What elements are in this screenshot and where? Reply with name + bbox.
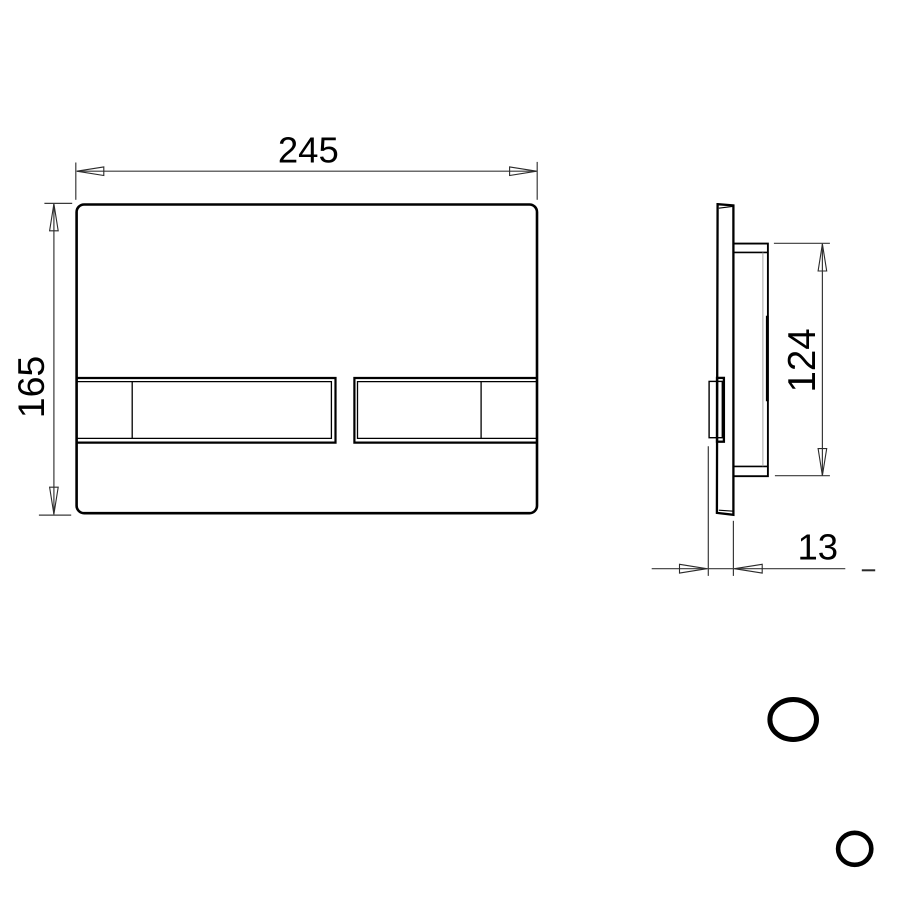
svg-text:13: 13 (797, 527, 838, 568)
svg-text:165: 165 (10, 356, 52, 419)
svg-text:245: 245 (278, 129, 339, 170)
svg-text:124: 124 (781, 328, 824, 392)
